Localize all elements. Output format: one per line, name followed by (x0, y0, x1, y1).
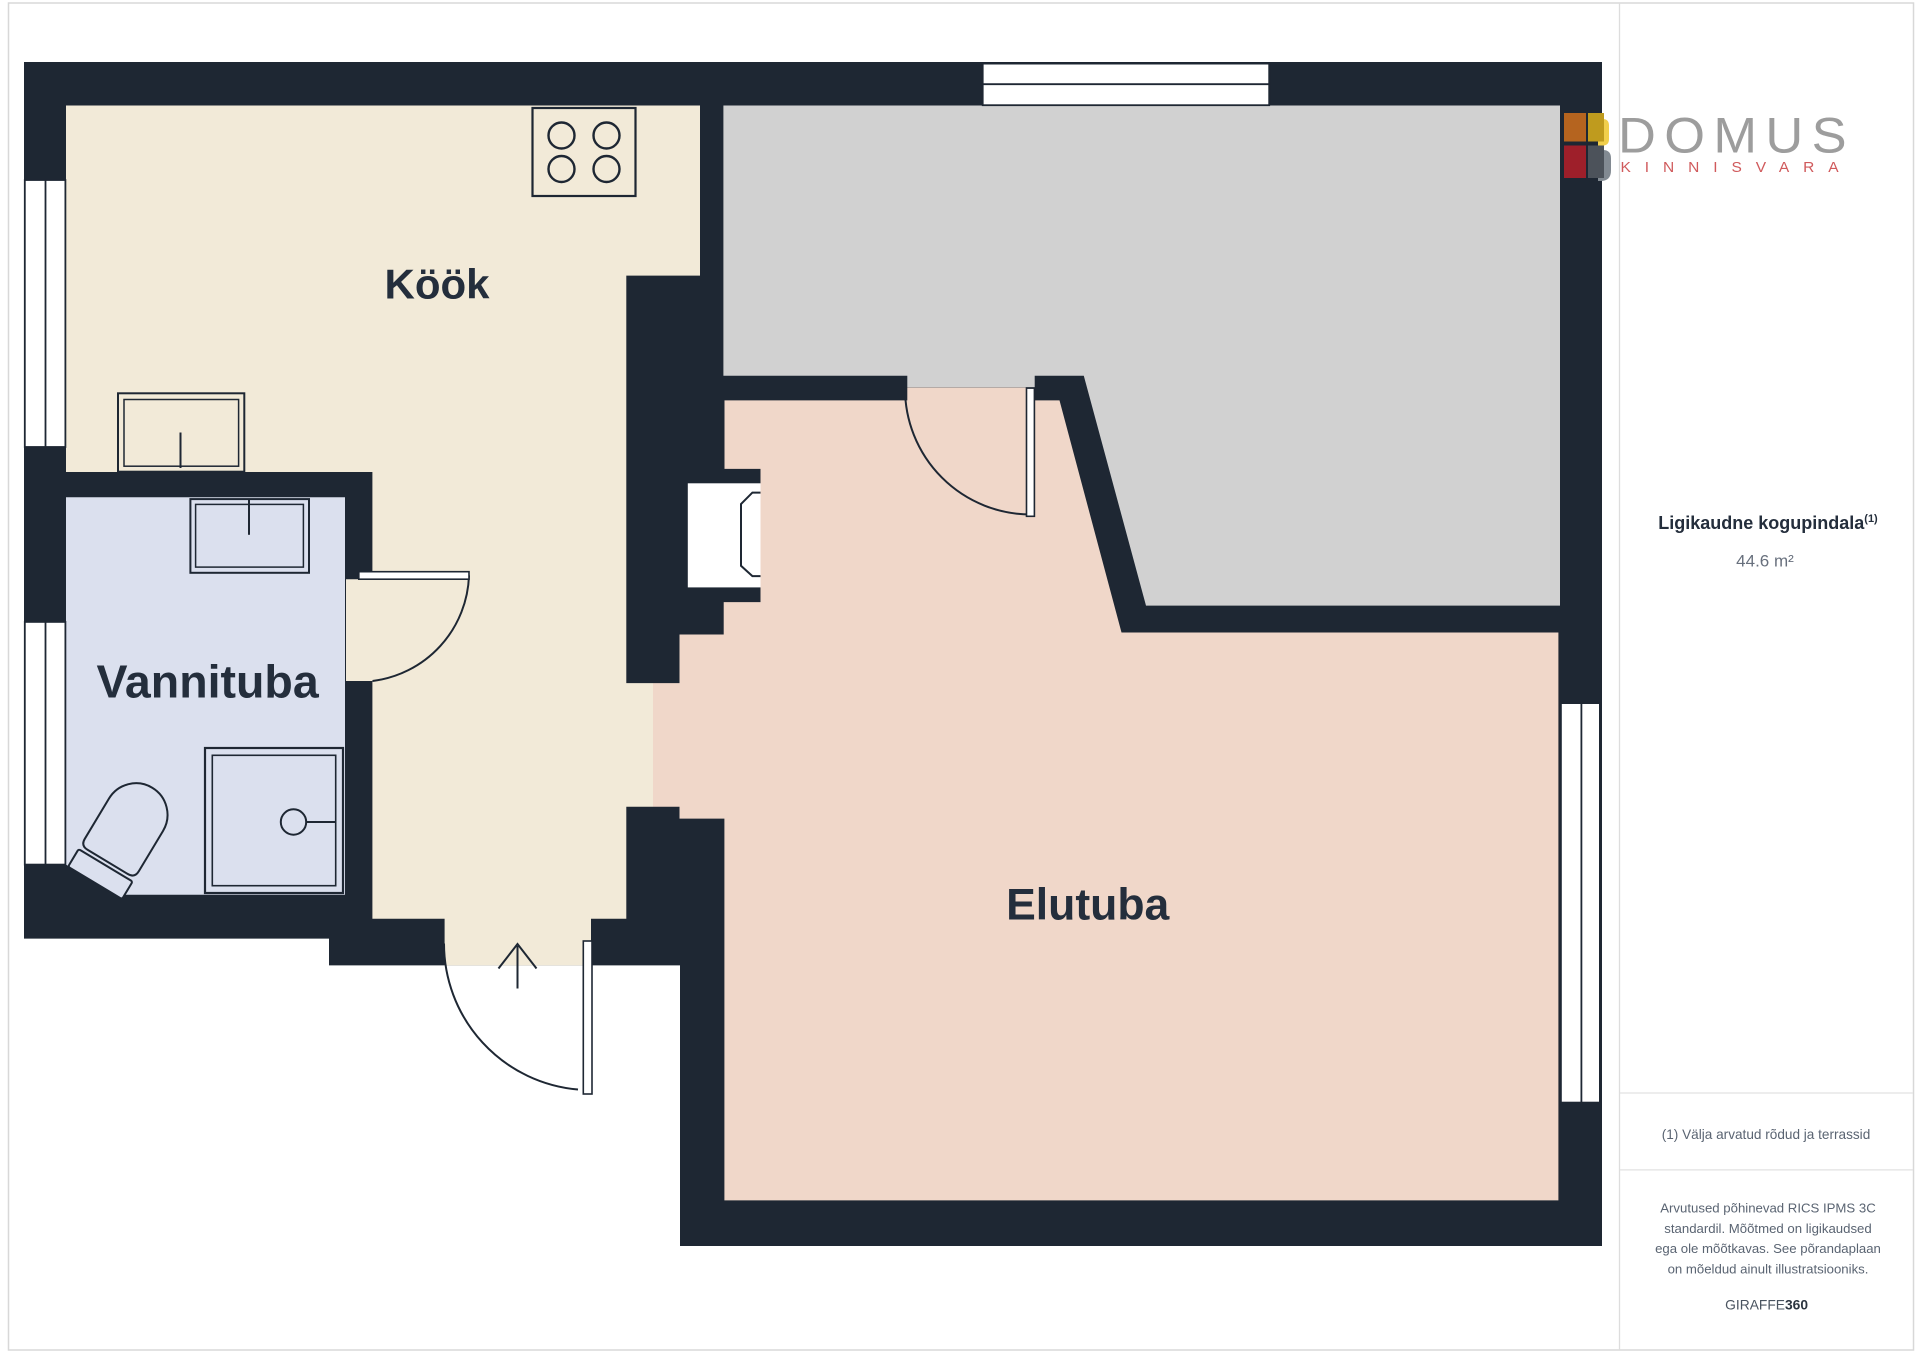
svg-text:standardil. Mõõtmed on ligikau: standardil. Mõõtmed on ligikaudsed (1664, 1221, 1871, 1236)
svg-text:ega ole mõõtkavas. See põranda: ega ole mõõtkavas. See põrandaplaan (1655, 1241, 1881, 1256)
svg-text:KINNISVARA: KINNISVARA (1621, 160, 1853, 176)
svg-text:Elutuba: Elutuba (1006, 881, 1170, 930)
svg-text:Köök: Köök (385, 260, 491, 307)
svg-text:Ligikaudne kogupindala(1): Ligikaudne kogupindala(1) (1658, 513, 1878, 533)
svg-text:GIRAFFE360: GIRAFFE360 (1725, 1298, 1808, 1313)
svg-text:Vannituba: Vannituba (96, 656, 319, 708)
svg-text:(1) Välja arvatud rõdud ja ter: (1) Välja arvatud rõdud ja terrassid (1662, 1127, 1871, 1142)
svg-text:Arvutused põhinevad RICS IPMS: Arvutused põhinevad RICS IPMS 3C (1660, 1201, 1876, 1216)
svg-text:DOMUS: DOMUS (1618, 108, 1855, 164)
svg-text:on mõeldud ainult illustratsio: on mõeldud ainult illustratsiooniks. (1668, 1261, 1869, 1276)
svg-text:44.6 m²: 44.6 m² (1736, 552, 1794, 571)
